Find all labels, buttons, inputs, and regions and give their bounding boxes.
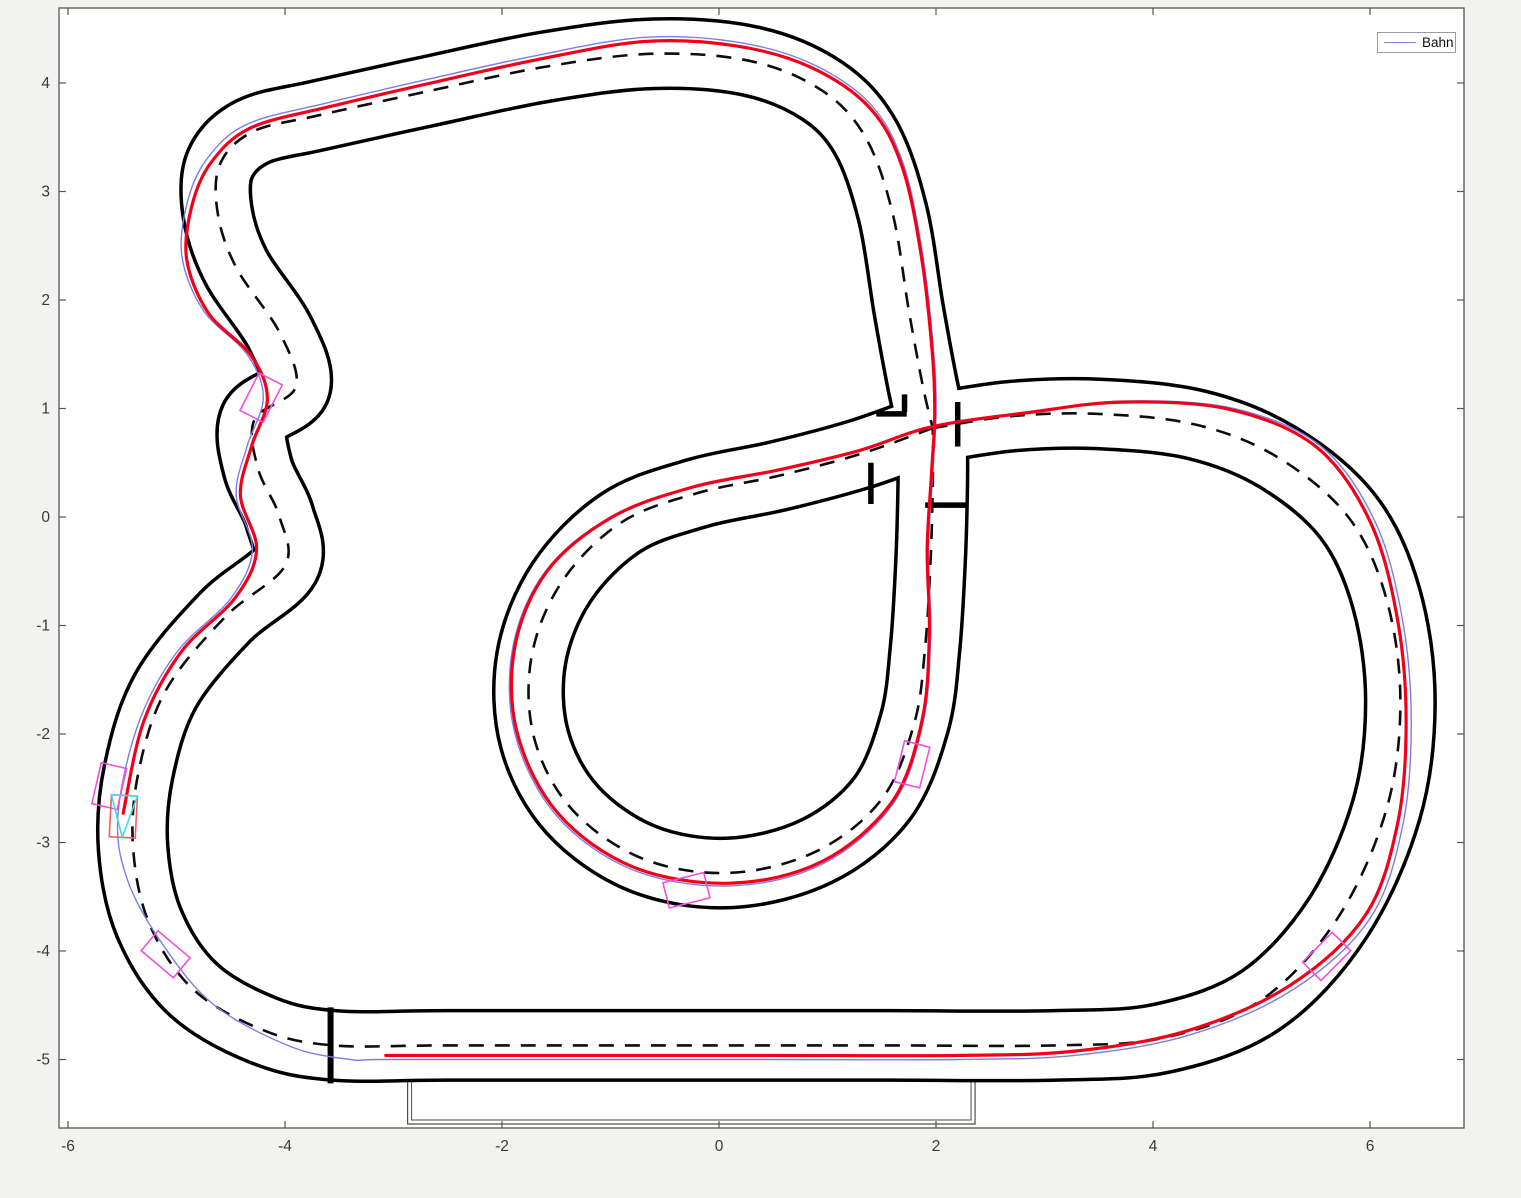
x-tick-label: -4 — [278, 1138, 292, 1155]
y-tick-label: -5 — [36, 1052, 50, 1069]
y-tick-label: -2 — [36, 726, 50, 743]
y-tick-label: 2 — [41, 292, 50, 309]
legend-box: Bahn — [1377, 32, 1456, 53]
x-tick-label: -2 — [495, 1138, 509, 1155]
x-tick-label: 0 — [715, 1138, 724, 1155]
y-tick-label: 0 — [41, 509, 50, 526]
y-tick-label: -3 — [36, 835, 50, 852]
legend-line-sample — [1384, 42, 1416, 43]
x-tick-label: 2 — [932, 1138, 941, 1155]
y-tick-label: 4 — [41, 75, 50, 92]
y-tick-label: 1 — [41, 401, 50, 418]
track-plot: -6-4-2024643210-1-2-3-4-5 — [0, 0, 1521, 1198]
x-tick-label: 4 — [1149, 1138, 1158, 1155]
legend-label: Bahn — [1422, 36, 1454, 50]
x-tick-label: 6 — [1366, 1138, 1375, 1155]
y-tick-label: -4 — [36, 943, 50, 960]
y-tick-label: -1 — [36, 618, 50, 635]
y-tick-label: 3 — [41, 184, 50, 201]
x-tick-label: -6 — [61, 1138, 75, 1155]
matlab-figure-window: -6-4-2024643210-1-2-3-4-5 Bahn — [0, 0, 1521, 1198]
track-plot-svg: -6-4-2024643210-1-2-3-4-5 — [0, 0, 1521, 1198]
